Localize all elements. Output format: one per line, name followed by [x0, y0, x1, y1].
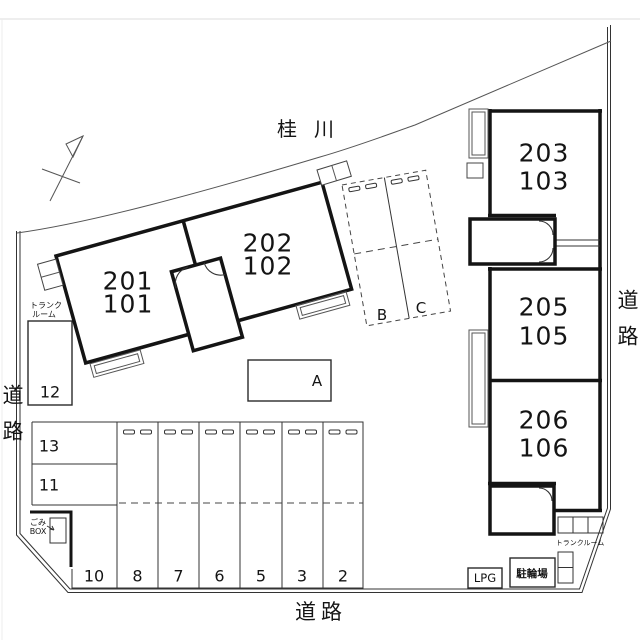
road-label-right: 道路	[615, 289, 639, 361]
step-boxes-north	[317, 161, 351, 185]
unit-103-label: 103	[519, 167, 570, 196]
road-label-bottom: 道路	[295, 600, 347, 624]
parking-space-6-label: 6	[214, 567, 224, 586]
road-label-left: 道路	[0, 384, 24, 456]
corridor-wall	[556, 240, 600, 246]
site-plan-page: 桂川 道路 道路 道路 201 101 202 102 203 103 205 …	[0, 0, 640, 640]
parking-space-a-label: A	[312, 372, 323, 390]
garbage-box-label-line2: BOX	[30, 527, 47, 536]
equipment-box	[467, 163, 483, 178]
parking-space-3-label: 3	[297, 567, 307, 586]
parking-lot	[32, 422, 363, 588]
parking-space-2-label: 2	[338, 567, 348, 586]
parking-space-8-label: 8	[132, 567, 142, 586]
parking-space-11-label: 11	[39, 476, 59, 495]
parking-space-c-label: C	[416, 299, 426, 317]
unit-106-label: 106	[519, 434, 570, 463]
site-plan-drawing: 桂川 道路 道路 道路 201 101 202 102 203 103 205 …	[0, 0, 640, 640]
building-east-entrance-upper	[470, 219, 555, 264]
unit-206-label: 206	[519, 406, 570, 435]
parking-space-12-label: 12	[40, 383, 60, 402]
building-east-entrance-lower	[490, 486, 554, 534]
unit-102-label: 102	[243, 252, 294, 281]
balcony-205	[469, 330, 488, 427]
unit-105-label: 105	[519, 322, 570, 351]
trunk-room-west-label-line2: ルーム	[32, 310, 56, 319]
parking-space-7-label: 7	[173, 567, 183, 586]
unit-205-label: 205	[519, 293, 570, 322]
parking-stalls-bc	[342, 170, 451, 326]
river-label: 桂川	[277, 117, 351, 141]
parking-space-5-label: 5	[256, 567, 266, 586]
garbage-box-label-line1: ごみ	[30, 517, 46, 527]
building-west	[37, 182, 356, 384]
trunk-room-east-label: トランクルーム	[556, 539, 605, 547]
unit-203-label: 203	[519, 139, 570, 168]
trunk-room-west-label-line1: トランク	[30, 301, 62, 310]
parking-space-b-label: B	[377, 306, 387, 324]
parking-space-10-label: 10	[84, 567, 104, 586]
bicycle-parking-label: 駐輪場	[516, 567, 548, 580]
parking-space-13-label: 13	[39, 437, 59, 456]
balcony-203	[469, 109, 488, 158]
unit-101-label: 101	[103, 290, 154, 319]
north-arrow-icon	[42, 136, 83, 201]
lpg-label: LPG	[474, 571, 496, 585]
